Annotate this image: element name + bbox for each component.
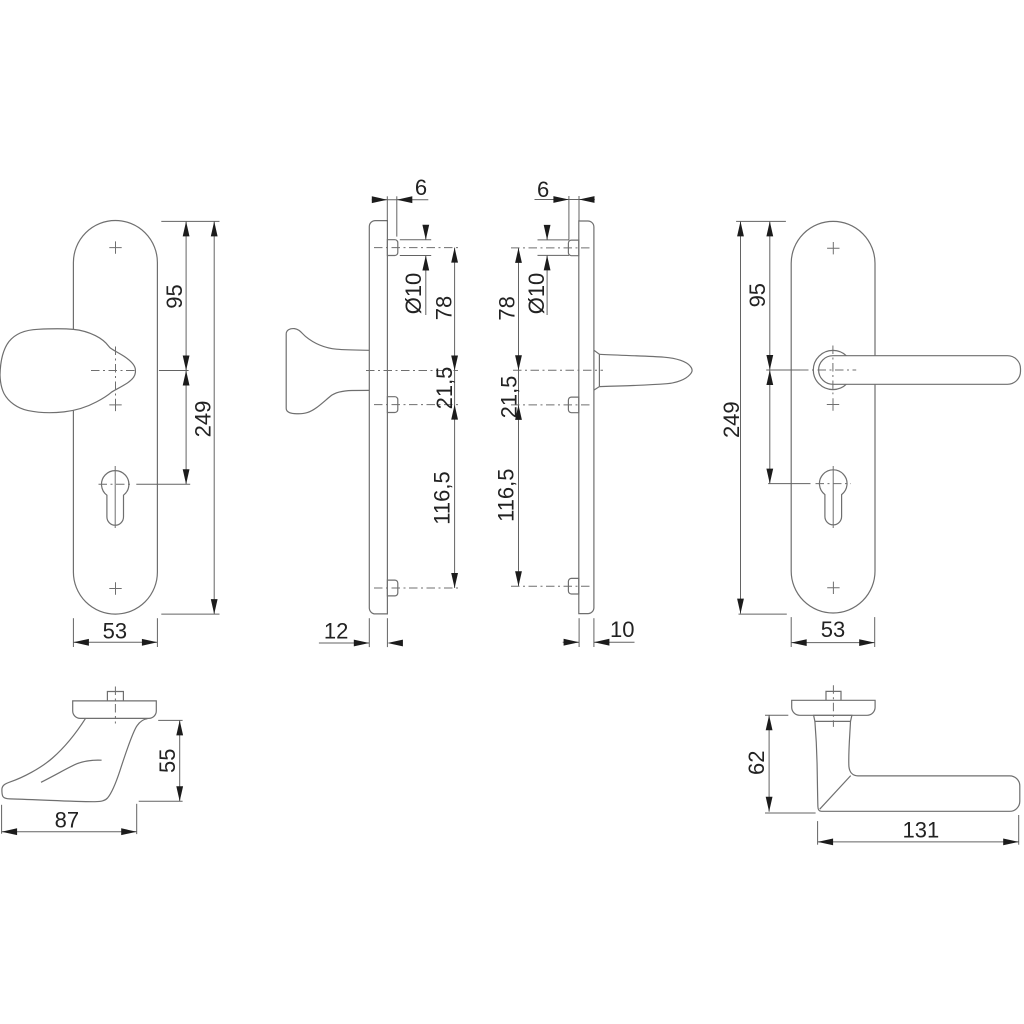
svg-text:53: 53 — [103, 618, 127, 643]
svg-text:78: 78 — [495, 296, 520, 320]
svg-text:95: 95 — [162, 284, 187, 308]
svg-text:10: 10 — [610, 617, 634, 642]
svg-text:249: 249 — [719, 401, 744, 438]
svg-text:78: 78 — [431, 296, 456, 320]
svg-text:21,5: 21,5 — [432, 367, 457, 410]
svg-text:116,5: 116,5 — [494, 468, 519, 521]
svg-text:131: 131 — [903, 817, 940, 842]
svg-text:87: 87 — [55, 808, 79, 833]
svg-text:12: 12 — [324, 619, 348, 644]
svg-text:249: 249 — [191, 401, 216, 438]
svg-text:Ø10: Ø10 — [524, 273, 549, 315]
svg-text:55: 55 — [155, 749, 180, 773]
svg-text:Ø10: Ø10 — [401, 273, 426, 315]
svg-text:62: 62 — [744, 751, 769, 775]
svg-text:53: 53 — [821, 617, 845, 642]
svg-text:116,5: 116,5 — [430, 471, 455, 524]
svg-text:21,5: 21,5 — [496, 376, 521, 419]
svg-text:6: 6 — [537, 177, 549, 202]
svg-text:6: 6 — [415, 175, 427, 200]
svg-text:95: 95 — [745, 283, 770, 307]
